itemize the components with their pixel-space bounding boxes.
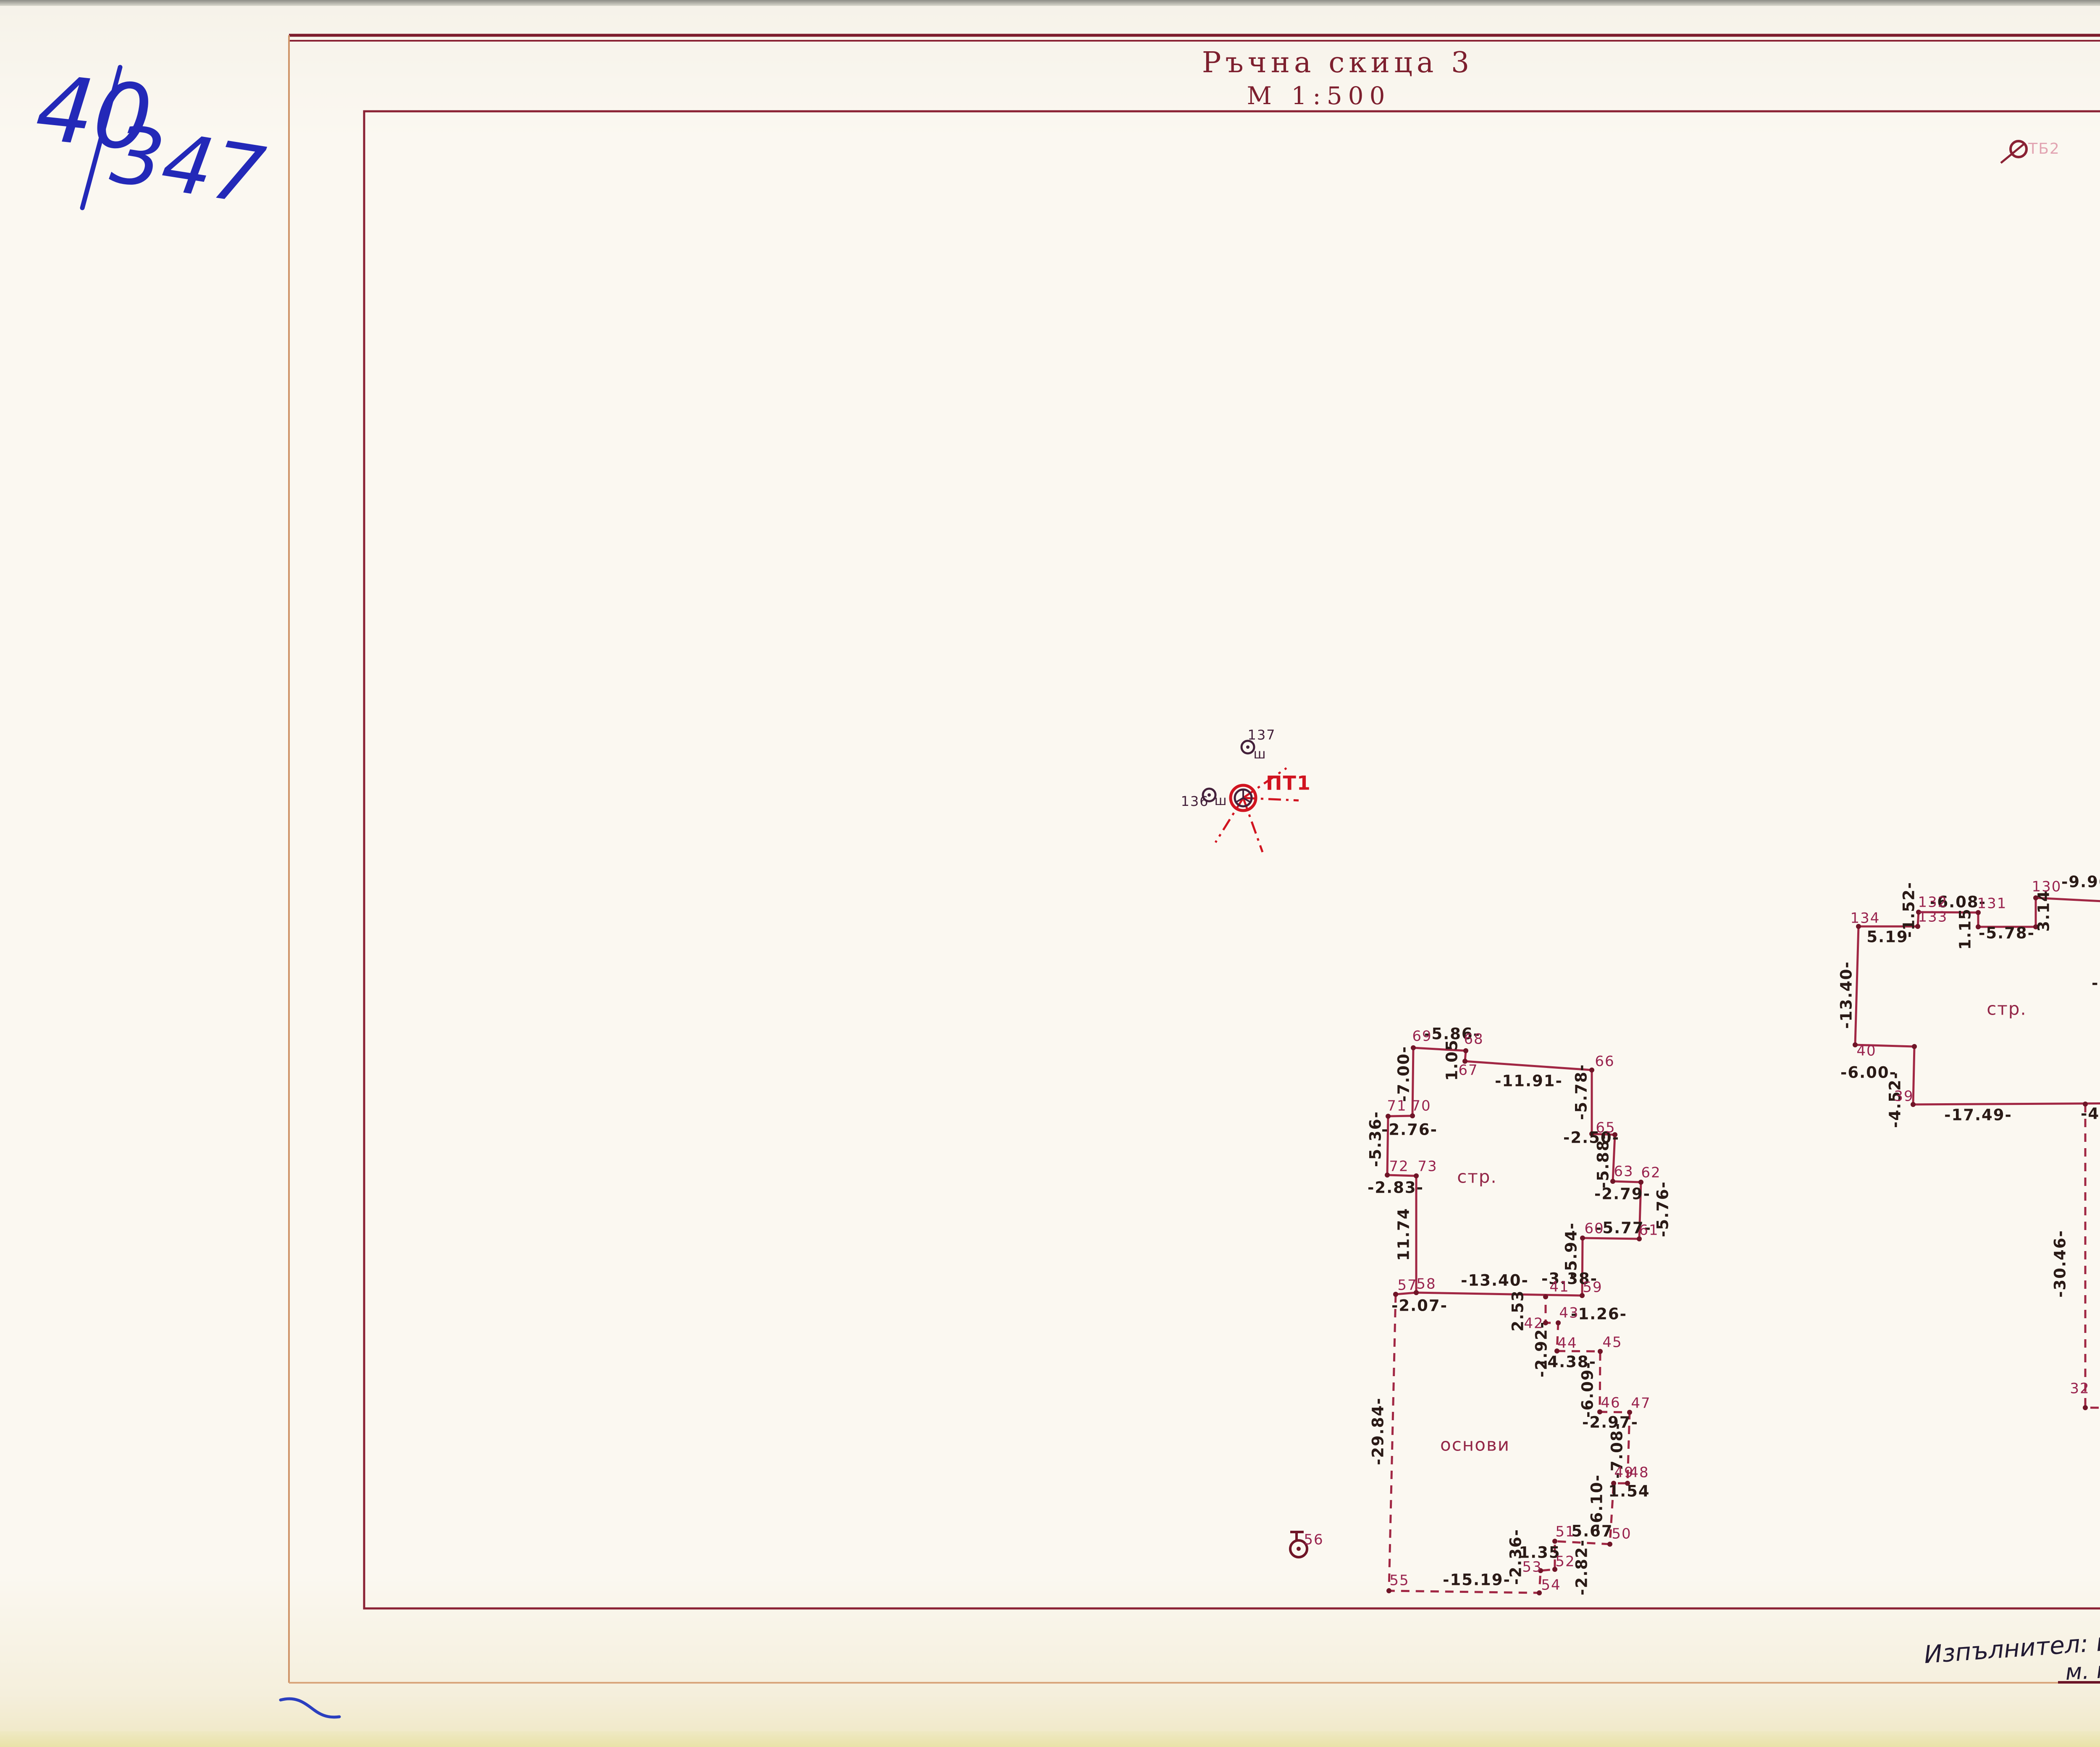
point-number: 59 [1583,1279,1602,1296]
outer-frame [289,35,2100,1683]
detail-point-label: 136 [1181,793,1209,809]
point-number: 32 [2070,1380,2089,1397]
measurement-label: -2.76- [1381,1121,1438,1139]
point-number: 41 [1549,1279,1569,1296]
vertex-dot [1607,1542,1612,1547]
vertex-dot [1543,1294,1548,1299]
sketch-canvas: Ръчна скица 3 М 1:500 40 347 Изпълнител:… [0,0,2100,1747]
measurement-label: -5.78- [1979,924,2035,942]
point-number: 60 [1584,1220,1604,1237]
point-number: 132 [1918,894,1948,911]
measurement-label: -2.79- [1594,1185,1651,1203]
point-number: 68 [1464,1031,1483,1048]
point-number: 52 [1555,1553,1575,1570]
point-number: 62 [1641,1165,1661,1181]
sketch-title: Ръчна скица 3 [1202,46,1474,79]
point-number: 53 [1522,1559,1542,1576]
point56-dot [1297,1547,1301,1551]
point-number: 65 [1596,1120,1615,1136]
measurement-label: -5.88- [1594,1132,1612,1188]
point-number: 51 [1555,1524,1575,1540]
vertex-dot [1912,1044,1917,1049]
blue-pen-mark [281,1699,339,1717]
signature: Изпълнител: инж. Е. Чопова м. юни 1985г. [1923,1615,2100,1685]
point-number: 61 [1639,1222,1659,1239]
zone-label: стр. [1457,1167,1497,1187]
point-number: 44 [1557,1335,1577,1352]
point56-t-flag-icon [1290,1532,1304,1540]
measurement-label: -11.91- [1495,1072,1563,1090]
measurement-label: 1.15 [1956,908,1974,950]
point-number: 47 [1631,1395,1651,1412]
doc-number-denominator: 347 [105,108,270,223]
point-number: 134 [1851,910,1880,927]
point-number: 43 [1559,1305,1579,1322]
vertex-dot [1463,1048,1468,1053]
measurement-label: 3.14 [2035,890,2053,931]
point-number: 131 [1977,895,2007,912]
zone-label: стр. [1987,999,2027,1019]
measurement-label: -30.46- [2051,1230,2069,1298]
detail-point-label: ш [1214,792,1227,808]
point-number: 67 [1458,1062,1478,1079]
sketch-scale: М 1:500 [1247,81,1391,110]
scanned-survey-sketch: Ръчна скица 3 М 1:500 40 347 Изпълнител:… [0,0,2100,1747]
station-label: ПТ1 [1266,772,1311,795]
point-center-dot [1246,745,1249,749]
point-number: 69 [1412,1028,1432,1045]
point-number: 46 [1601,1395,1620,1411]
vertex-dot [1386,1588,1391,1593]
measurement-label: 11.74 [1395,1207,1413,1261]
measurement-label: -13.40- [1461,1272,1529,1290]
vertex-dot [1386,1114,1391,1119]
point-number: 56 [1304,1532,1323,1548]
survey-drawing: -5.86-1.05-11.91--7.00--2.76--5.36--2.83… [1181,140,2100,1595]
detail-point-label: 137 [1247,727,1276,743]
point-number: 40 [1856,1043,1876,1060]
point-number: 66 [1595,1053,1614,1070]
measurement-label: -5.78- [1572,1064,1591,1120]
point-number: 54 [1541,1577,1561,1594]
faint-point-label: ТБ2 [2028,140,2060,157]
measurement-label: -1.26- [1571,1305,1627,1323]
point-number: 57 [1397,1277,1417,1294]
measurement-label: -4.59- [2081,1105,2100,1123]
measurement-label: -15.19- [1443,1571,1511,1589]
zone-label: основи [1440,1435,1510,1455]
measurement-label: 5.67 [1571,1522,1613,1540]
measurement-label: -7.00- [1395,1046,1413,1102]
measurement-label: -2.83- [1368,1179,1424,1197]
foundation-right-outline [2085,1102,2100,1408]
inner-frame [364,111,2100,1608]
point-number: 130 [2032,879,2062,895]
point-number: 70 [1411,1098,1431,1115]
vertex-dot [2083,1405,2088,1410]
measurement-label: -17.49- [1944,1106,2012,1124]
point-number: 73 [1417,1158,1437,1175]
point-number: 63 [1614,1163,1633,1180]
point-number: 72 [1389,1158,1409,1175]
point-number: 133 [1918,909,1948,926]
measurement-label: -1.26- [2092,974,2100,992]
measurement-label: 1.54 [1608,1482,1650,1500]
measurement-label: -13.40- [1837,961,1856,1029]
measurement-label: -29.84- [1369,1397,1387,1465]
point-number: 50 [1612,1526,1631,1542]
vertex-dot [1598,1349,1603,1354]
measurement-label: -6.09- [1579,1361,1597,1418]
measurement-label: -2.82- [1573,1539,1591,1595]
measurement-label: -2.07- [1391,1297,1448,1315]
point-number: 58 [1416,1276,1436,1293]
doc-number: 40 347 [31,55,270,223]
point-number: 71 [1387,1098,1407,1115]
point-number: 39 [1894,1088,1914,1105]
measurement-label: -9.96- [2061,873,2100,891]
point-number: 42 [1524,1315,1543,1332]
point-number: 45 [1602,1334,1622,1351]
measurement-label: -5.36- [1367,1111,1385,1167]
measurement-label: -1.52- [1900,881,1918,938]
point-number: 55 [1389,1572,1409,1589]
point-number: 48 [1629,1464,1649,1481]
detail-point-label: ш [1253,746,1266,762]
slashed-circle-tail [2001,144,2024,163]
